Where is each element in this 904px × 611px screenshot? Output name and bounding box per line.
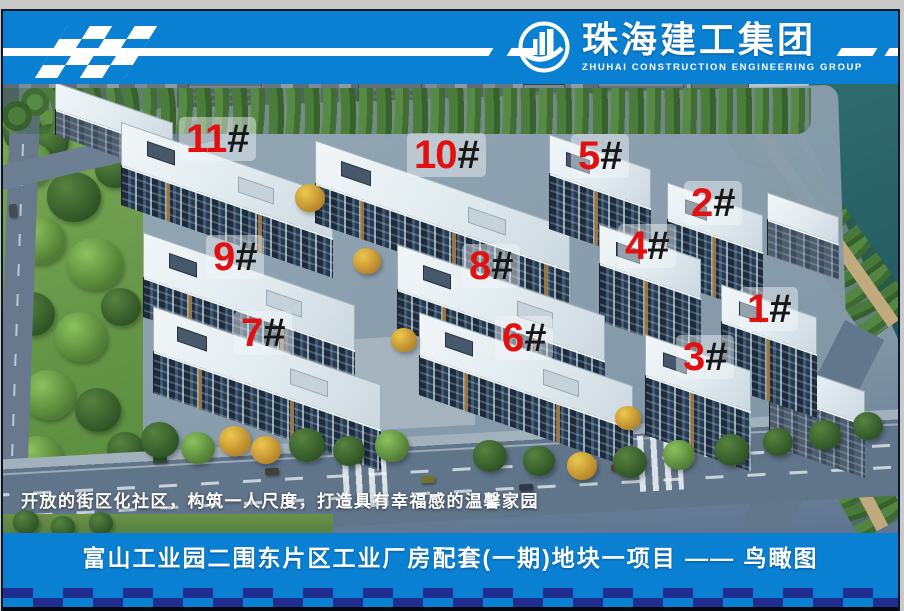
- footer-pattern: [3, 578, 898, 607]
- building-label-4: 4#: [618, 224, 676, 268]
- brand-name-en: ZHUHAI CONSTRUCTION ENGINEERING GROUP: [582, 62, 863, 73]
- tree: [47, 172, 101, 222]
- checker-row-1: [3, 588, 898, 598]
- page: { "header": { "brand_cn": "珠海建工集团", "bra…: [0, 0, 904, 611]
- checker-row-2: [3, 598, 898, 607]
- tree: [663, 440, 695, 470]
- tree: [853, 412, 883, 440]
- tree: [141, 422, 179, 458]
- tree: [181, 432, 215, 464]
- project-title: 富山工业园二围东片区工业厂房配套(一期)地块一项目 —— 鸟瞰图: [82, 539, 818, 573]
- tree: [51, 516, 75, 533]
- building-label-1: 1#: [740, 287, 798, 331]
- tree: [13, 510, 39, 533]
- tree: [613, 446, 647, 478]
- building-label-8: 8#: [462, 244, 520, 288]
- building-label-11: 11#: [179, 117, 256, 161]
- tree: [295, 184, 325, 212]
- building-label-2: 2#: [684, 181, 742, 225]
- tree: [75, 388, 121, 432]
- tree: [251, 436, 281, 464]
- slogan-text: 开放的街区化社区，构筑一人尺度，打造具有幸福感的温馨家园: [21, 487, 539, 512]
- tree: [715, 434, 749, 466]
- car: [421, 476, 435, 484]
- building-label-6: 6#: [495, 316, 553, 360]
- tree: [67, 238, 123, 290]
- company-logo-icon: [517, 20, 571, 74]
- bottom-edge: [3, 607, 898, 611]
- tree: [101, 288, 141, 326]
- tree: [567, 452, 597, 480]
- header-bar: 珠海建工集团 ZHUHAI CONSTRUCTION ENGINEERING G…: [3, 11, 898, 84]
- tree: [809, 420, 841, 450]
- tree: [375, 430, 409, 462]
- tree: [219, 426, 251, 456]
- building-label-5: 5#: [571, 134, 629, 178]
- building-label-9: 9#: [206, 235, 264, 279]
- car: [9, 204, 18, 217]
- brand: 珠海建工集团 ZHUHAI CONSTRUCTION ENGINEERING G…: [517, 20, 863, 74]
- tree: [473, 440, 507, 472]
- building-label-3: 3#: [676, 335, 734, 379]
- tree: [55, 312, 107, 362]
- tree: [523, 446, 555, 476]
- car: [265, 468, 279, 476]
- brand-text: 珠海建工集团 ZHUHAI CONSTRUCTION ENGINEERING G…: [582, 21, 863, 73]
- tree: [89, 512, 113, 533]
- title-bar: 富山工业园二围东片区工业厂房配套(一期)地块一项目 —— 鸟瞰图: [3, 533, 898, 578]
- tree: [353, 248, 381, 274]
- tree: [333, 436, 365, 466]
- building-label-10: 10#: [407, 133, 486, 177]
- slide: 珠海建工集团 ZHUHAI CONSTRUCTION ENGINEERING G…: [1, 9, 900, 611]
- tree: [763, 428, 793, 456]
- brand-name-cn: 珠海建工集团: [582, 21, 863, 59]
- tree: [615, 406, 641, 430]
- aerial-rendering: 11# 10# 5# 2# 4# 9# 8# 1# 7# 6# 3# 开放的街区…: [3, 84, 898, 533]
- header-stripe: [885, 48, 900, 56]
- building-label-7: 7#: [234, 311, 292, 355]
- checker-flag-logo-icon: [35, 26, 157, 78]
- tree: [289, 428, 325, 462]
- tree: [391, 328, 417, 352]
